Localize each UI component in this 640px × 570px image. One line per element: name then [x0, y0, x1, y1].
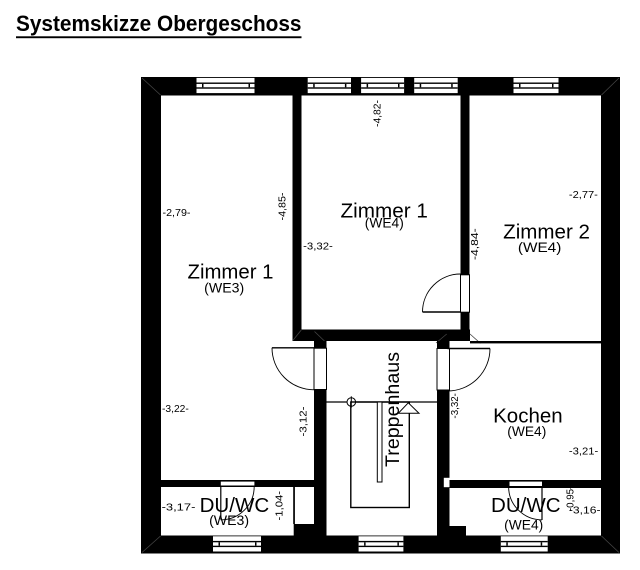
svg-text:(WE4): (WE4) — [518, 240, 562, 255]
svg-text:Treppenhaus: Treppenhaus — [383, 352, 404, 467]
svg-text:-3,22-: -3,22- — [162, 403, 189, 415]
svg-text:-3,12-: -3,12- — [298, 406, 310, 437]
svg-text:(WE3): (WE3) — [204, 281, 244, 296]
svg-text:-4,84-: -4,84- — [469, 228, 481, 260]
svg-text:-1,04-: -1,04- — [273, 490, 285, 520]
svg-text:-2,77-: -2,77- — [569, 189, 599, 201]
svg-text:-4,85-: -4,85- — [277, 192, 289, 221]
svg-text:-3,16-: -3,16- — [569, 505, 601, 517]
svg-text:(WE4): (WE4) — [507, 424, 546, 439]
svg-text:-3,32-: -3,32- — [449, 393, 461, 419]
svg-text:-3,17-: -3,17- — [162, 501, 196, 513]
svg-text:(WE3): (WE3) — [209, 513, 249, 528]
svg-text:-3,21-: -3,21- — [569, 446, 599, 458]
svg-text:-4,82-: -4,82- — [372, 100, 384, 127]
svg-text:(WE4): (WE4) — [365, 216, 404, 231]
svg-text:Systemskizze Obergeschoss: Systemskizze Obergeschoss — [16, 11, 302, 36]
svg-text:-2,79-: -2,79- — [163, 207, 192, 219]
svg-text:DU/WC: DU/WC — [491, 495, 561, 517]
svg-text:(WE4): (WE4) — [504, 517, 543, 532]
svg-text:-3,32-: -3,32- — [303, 240, 333, 252]
